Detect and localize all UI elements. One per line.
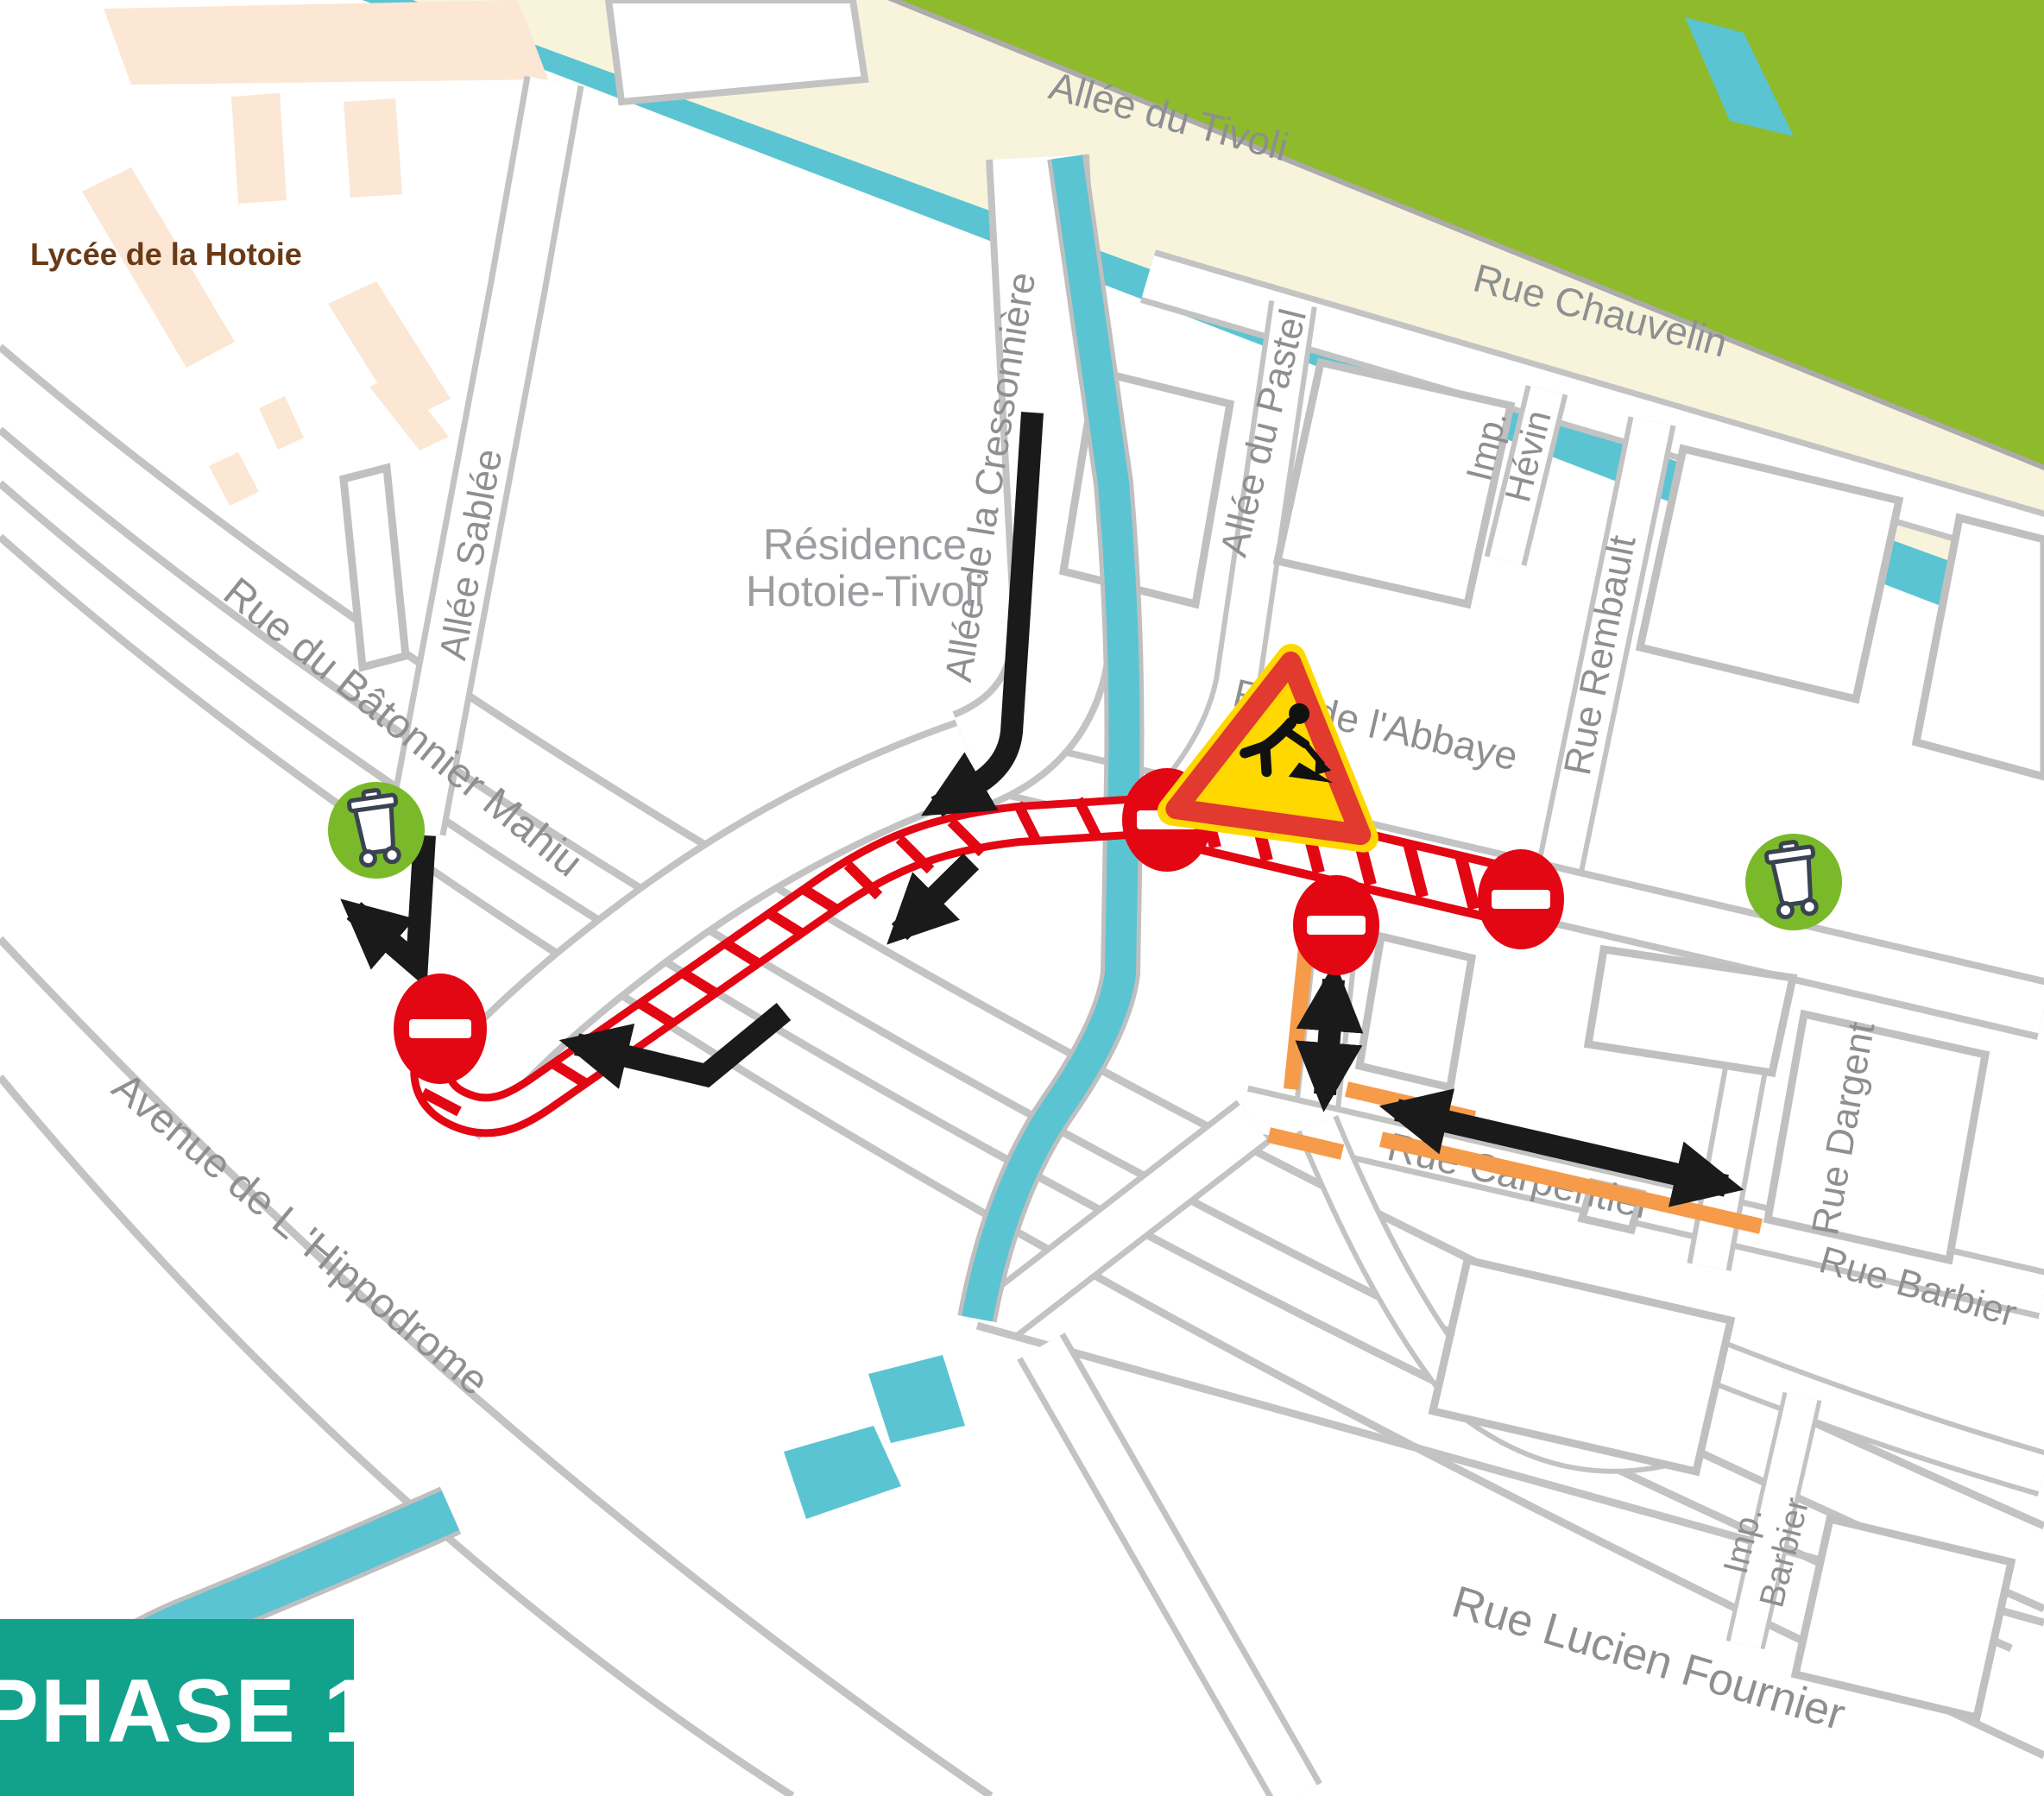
phase-badge: PHASE 1 — [0, 1619, 375, 1796]
area-label-residence-2: Hotoie-Tivoli — [746, 567, 984, 615]
roadworks-phase-map: Allée du Tivoli Rue Chauvelin Allée du P… — [0, 0, 2044, 1796]
no-entry-sign — [1293, 875, 1379, 975]
area-label-lycee: Lycée de la Hotoie — [30, 236, 302, 272]
no-entry-sign — [394, 974, 487, 1084]
street-label-rembault: Rue Rembault — [1556, 532, 1644, 778]
area-label-residence-1: Résidence — [763, 520, 967, 569]
phase-badge-label: PHASE 1 — [0, 1661, 375, 1761]
two-way-arrow-branch — [1325, 980, 1334, 1094]
no-entry-sign — [1478, 849, 1564, 949]
